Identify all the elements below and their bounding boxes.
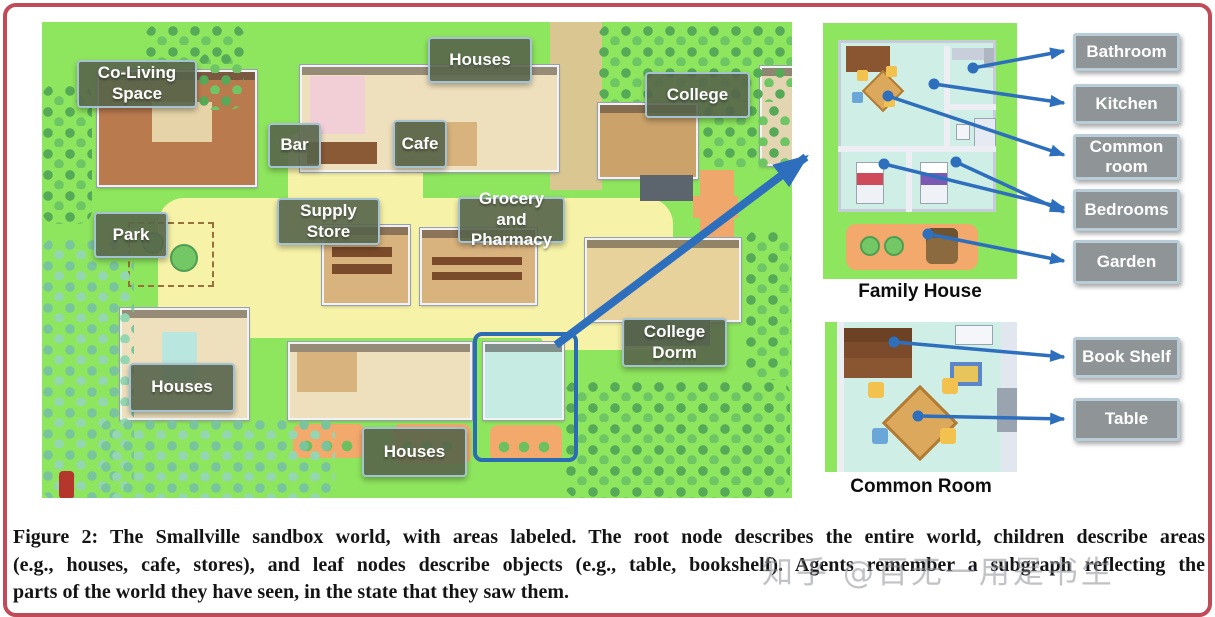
bookshelf: [844, 328, 912, 378]
counter: [955, 325, 993, 345]
smallville-map: Co-Living Space Houses Bar Cafe College …: [42, 22, 792, 498]
map-label-houses-bottom: Houses: [362, 427, 467, 477]
wall: [944, 104, 996, 110]
tree-cluster: [565, 380, 790, 498]
cabinet: [997, 388, 1017, 432]
label-table: Table: [1073, 398, 1180, 441]
park-tree: [170, 244, 198, 272]
common-room-caption: Common Room: [825, 476, 1017, 498]
college-dorm-building: [585, 238, 741, 322]
chair: [857, 70, 868, 81]
label-garden: Garden: [1073, 240, 1180, 284]
gazebo: [926, 228, 958, 264]
map-label-college: College: [645, 72, 750, 118]
family-house-caption: Family House: [823, 281, 1017, 303]
watermark: 知乎 @百无一用是书生: [762, 547, 1115, 592]
garden-tree: [884, 236, 904, 256]
toilet: [956, 124, 970, 140]
college-walkway-branch: [693, 196, 738, 218]
tree-cluster: [198, 52, 244, 110]
grass-strip: [825, 322, 837, 472]
chair: [884, 96, 895, 107]
family-house-panel: [823, 23, 1017, 279]
bed: [920, 162, 948, 204]
label-bathroom: Bathroom: [1073, 33, 1180, 71]
tree-cluster: [745, 230, 791, 380]
map-label-college-dorm: College Dorm: [622, 318, 727, 367]
bed: [856, 162, 884, 204]
wall: [906, 146, 912, 212]
map-label-grocery-pharmacy: Grocery and Pharmacy: [458, 197, 565, 243]
label-book-shelf: Book Shelf: [1073, 337, 1180, 378]
chair: [940, 428, 956, 444]
map-label-bar: Bar: [268, 123, 321, 168]
wall: [837, 322, 844, 472]
label-kitchen: Kitchen: [1073, 84, 1180, 124]
table: [882, 385, 958, 461]
map-label-houses-top: Houses: [428, 37, 532, 83]
family-house-highlight: [473, 332, 578, 462]
label-common-room: Common room: [1073, 134, 1180, 180]
car: [59, 471, 74, 498]
tree-cluster: [100, 418, 335, 498]
label-bedrooms: Bedrooms: [1073, 189, 1180, 231]
chair: [872, 428, 888, 444]
chair: [886, 66, 897, 77]
fridge: [984, 48, 994, 68]
garden-tree: [860, 236, 880, 256]
map-label-park: Park: [94, 212, 168, 258]
houses-bottom-building: [288, 342, 472, 420]
chair: [852, 92, 863, 103]
wall: [944, 46, 950, 150]
wall: [838, 146, 996, 152]
map-label-houses-left: Houses: [129, 363, 235, 412]
chair: [942, 378, 958, 394]
college-porch: [640, 175, 693, 201]
common-room-panel: [825, 322, 1017, 472]
map-label-supply-store: Supply Store: [277, 198, 380, 245]
map-label-cafe: Cafe: [393, 120, 447, 168]
bookshelf: [846, 46, 890, 72]
chair: [868, 382, 884, 398]
map-label-co-living-space: Co-Living Space: [77, 60, 197, 108]
